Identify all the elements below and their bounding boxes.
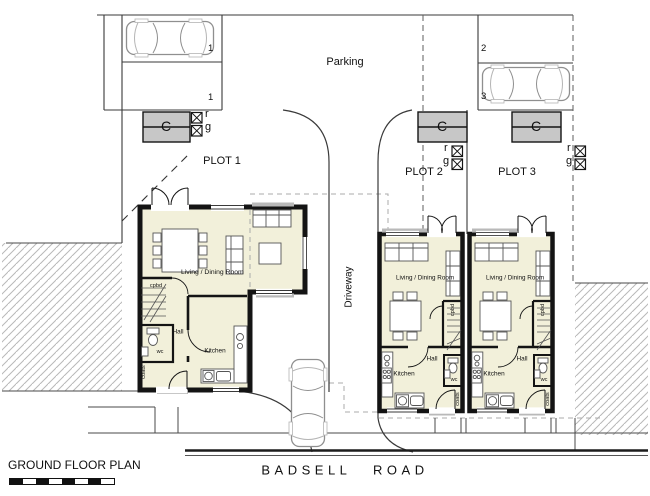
site-plan-linework xyxy=(0,0,650,496)
scale-bar-segment xyxy=(10,479,23,484)
room-label-living: Living / Dining Room xyxy=(486,274,538,281)
car-icon xyxy=(127,19,214,57)
scale-bar xyxy=(9,478,115,485)
site-plan: Parking 1 1 2 3 PLOT 1 PLOT 2 PLOT 3 C C… xyxy=(0,0,650,496)
refuse-label: r xyxy=(567,142,571,154)
room-label-wc: wc xyxy=(451,377,458,383)
garden-label: g xyxy=(566,155,572,167)
cycle-store-label: C xyxy=(531,119,541,135)
room-label-coats: coats xyxy=(141,365,147,378)
garden-label: g xyxy=(443,155,449,167)
driveway-label: Driveway xyxy=(343,266,354,307)
room-label-hall: Hall xyxy=(516,355,527,362)
plan-title: GROUND FLOOR PLAN xyxy=(8,459,141,472)
room-label-coats: coats xyxy=(455,392,461,405)
refuse-label: r xyxy=(444,142,448,154)
garden-box-icon xyxy=(575,159,586,170)
room-label-cupboard: cpbd xyxy=(540,304,546,316)
room-label-cupboard: cpbd xyxy=(450,304,456,316)
room-label-living: Living / Dining Room xyxy=(181,269,235,277)
car-icon xyxy=(289,360,327,447)
room-label-hall: Hall xyxy=(426,355,437,362)
plot1-label: PLOT 1 xyxy=(203,155,241,167)
road-edge xyxy=(185,451,648,456)
scale-bar-segment xyxy=(36,479,49,484)
plot1-house xyxy=(140,188,309,394)
cycle-store-label: C xyxy=(161,119,171,135)
parking-area-label: Parking xyxy=(326,56,363,68)
plot2-label: PLOT 2 xyxy=(405,166,443,178)
refuse-box-icon xyxy=(192,113,203,124)
room-label-living: Living / Dining Room xyxy=(396,274,448,281)
cycle-store-label: C xyxy=(437,119,447,135)
room-label-wc: wc xyxy=(541,377,548,383)
car-icon xyxy=(483,65,570,103)
scale-bar-segment xyxy=(23,479,36,484)
scale-bar-segment xyxy=(88,479,101,484)
room-label-coats: coats xyxy=(545,392,551,405)
scale-bar-segment xyxy=(101,479,114,484)
garden-box-icon xyxy=(192,126,203,137)
scale-bar-segment xyxy=(49,479,62,484)
garden-box-icon xyxy=(452,159,463,170)
room-label-kitchen: Kitchen xyxy=(393,370,414,377)
refuse-box-icon xyxy=(452,146,463,157)
plot3-label: PLOT 3 xyxy=(498,166,536,178)
scale-bar-segment xyxy=(62,479,75,484)
room-label-wc: wc xyxy=(157,349,164,355)
bay-number: 1 xyxy=(208,44,213,55)
garden-label: g xyxy=(205,121,211,133)
refuse-label: r xyxy=(205,108,209,120)
room-label-kitchen: Kitchen xyxy=(204,347,225,354)
road-name: BADSELL ROAD xyxy=(261,464,428,479)
room-label-hall: Hall xyxy=(172,328,183,335)
bay-number: 2 xyxy=(481,44,486,55)
bay-number: 1 xyxy=(208,93,213,104)
room-label-kitchen: Kitchen xyxy=(483,370,504,377)
refuse-box-icon xyxy=(575,146,586,157)
room-label-cupboard: cpbd xyxy=(150,283,162,289)
scale-bar-segment xyxy=(75,479,88,484)
bay-number: 3 xyxy=(481,92,486,103)
